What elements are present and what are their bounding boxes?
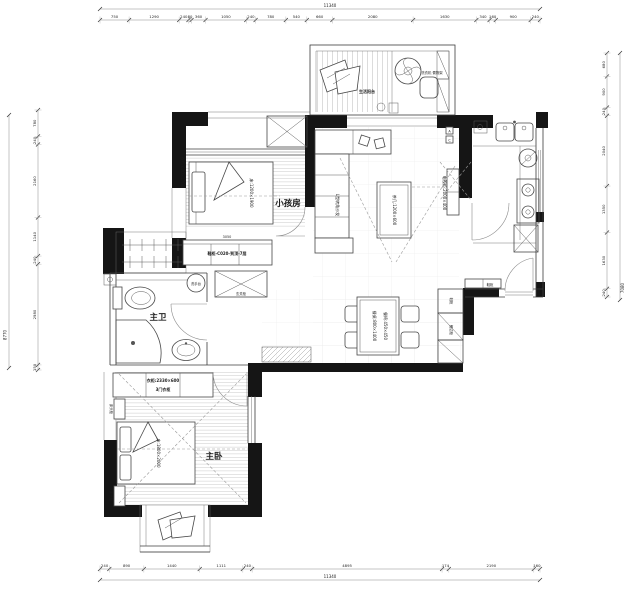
- floorplan-drawing: 生活阳台 洗衣机·置物架 小孩房 床:1200×1900 衣柜:600×1700…: [0, 0, 640, 594]
- shoe-cabinet-label-1: 鞋柜: [487, 282, 494, 287]
- svg-text:1630: 1630: [601, 255, 606, 265]
- svg-text:4895: 4895: [342, 563, 352, 568]
- nightstand-bottom: [114, 486, 125, 506]
- master-bath-label: 主卫: [149, 312, 167, 323]
- svg-text:160: 160: [489, 14, 497, 19]
- svg-text:1350: 1350: [601, 204, 606, 214]
- svg-text:240: 240: [101, 563, 109, 568]
- kids-wardrobe-label: 衣柜:600×1700: [180, 157, 186, 188]
- bath-sink: [172, 340, 200, 361]
- toilet: [113, 287, 155, 309]
- svg-text:11340: 11340: [324, 574, 337, 579]
- svg-text:2160: 2160: [32, 176, 37, 186]
- svg-text:11340: 11340: [324, 3, 337, 8]
- dining-chair: [401, 306, 419, 322]
- svg-text:680: 680: [601, 61, 606, 69]
- svg-text:1050: 1050: [221, 14, 231, 19]
- sideboard-label: 餐边柜: [449, 325, 454, 336]
- hall-cabinet-dim: 3050: [223, 235, 232, 239]
- storage-box-label: 玄关柜: [236, 291, 247, 296]
- kids-bed-label: 床:1200×1900: [249, 178, 255, 208]
- coffee-table-label: 茶几:1200×600: [392, 195, 398, 226]
- svg-text:360: 360: [195, 14, 203, 19]
- svg-text:1440: 1440: [167, 563, 177, 568]
- svg-text:240: 240: [32, 136, 37, 144]
- svg-text:240: 240: [247, 14, 255, 19]
- dining-chair-label: 餐椅:450×450: [383, 312, 389, 340]
- svg-text:1290: 1290: [149, 14, 159, 19]
- svg-text:150: 150: [32, 363, 37, 371]
- svg-text:1111: 1111: [216, 563, 226, 568]
- svg-text:780: 780: [267, 14, 275, 19]
- svg-text:2980: 2980: [32, 309, 37, 319]
- dining-table: [357, 297, 399, 355]
- svg-text:900: 900: [510, 14, 518, 19]
- washbasin-callout: 洗手台: [187, 274, 205, 292]
- washer-label: 洗衣机·置物架: [421, 70, 443, 75]
- low-cabinet-hatch: [262, 347, 311, 362]
- master-bed-label: 床:1800×2000: [156, 438, 162, 468]
- svg-text:2080: 2080: [368, 14, 378, 19]
- svg-text:540: 540: [293, 14, 301, 19]
- svg-text:2190: 2190: [486, 563, 496, 568]
- svg-text:8770: 8770: [3, 329, 8, 340]
- hall-cabinet-label: 鞋柜-C020-到顶-7层: [207, 250, 246, 256]
- svg-text:240: 240: [32, 256, 37, 264]
- svg-text:240: 240: [601, 107, 606, 115]
- master-wardrobe-label1: 衣柜:2330×600: [147, 377, 180, 383]
- svg-text:780: 780: [32, 119, 37, 127]
- tv-cabinet-label: 电视柜:2000×400: [442, 176, 448, 211]
- master-bedroom-label: 主卧: [205, 451, 223, 462]
- nightstand-label-1: 床头柜: [109, 404, 114, 415]
- svg-text:160: 160: [533, 563, 541, 568]
- svg-text:750: 750: [111, 14, 119, 19]
- nightstand-label-2: 床头柜: [109, 491, 114, 502]
- svg-text:洗手台: 洗手台: [191, 281, 202, 286]
- svg-text:1630: 1630: [440, 14, 450, 19]
- master-bed: [117, 422, 195, 484]
- svg-text:240: 240: [532, 14, 540, 19]
- svg-text:2040: 2040: [601, 145, 606, 155]
- svg-text:660: 660: [316, 14, 324, 19]
- sofa-label: L型转角沙发: [335, 194, 341, 216]
- kids-bed: [189, 162, 273, 224]
- svg-text:340: 340: [479, 14, 487, 19]
- svg-text:890: 890: [123, 563, 131, 568]
- svg-text:240: 240: [244, 563, 252, 568]
- svg-text:900: 900: [601, 88, 606, 96]
- nightstand-top: [114, 399, 125, 419]
- svg-text:174: 174: [442, 563, 450, 568]
- shoe-cabinet-label-2: 鞋柜: [449, 298, 454, 305]
- svg-text:7080: 7080: [620, 282, 625, 293]
- balcony-label: 生活阳台: [359, 88, 375, 94]
- floorplan-page: 生活阳台 洗衣机·置物架 小孩房 床:1200×1900 衣柜:600×1700…: [0, 0, 640, 594]
- svg-text:240: 240: [601, 289, 606, 297]
- entry-shoe-cabinet: 鞋柜: [465, 279, 501, 288]
- dining-chair: [401, 332, 419, 348]
- dining-table-label: 餐桌:800×1400: [372, 311, 378, 342]
- master-wardrobe: 衣柜:2330×600 3门衣柜: [113, 373, 213, 397]
- kids-room-label: 小孩房: [274, 198, 301, 209]
- svg-text:80: 80: [188, 14, 193, 19]
- svg-text:1140: 1140: [32, 231, 37, 241]
- master-wardrobe-label2: 3门衣柜: [156, 386, 171, 392]
